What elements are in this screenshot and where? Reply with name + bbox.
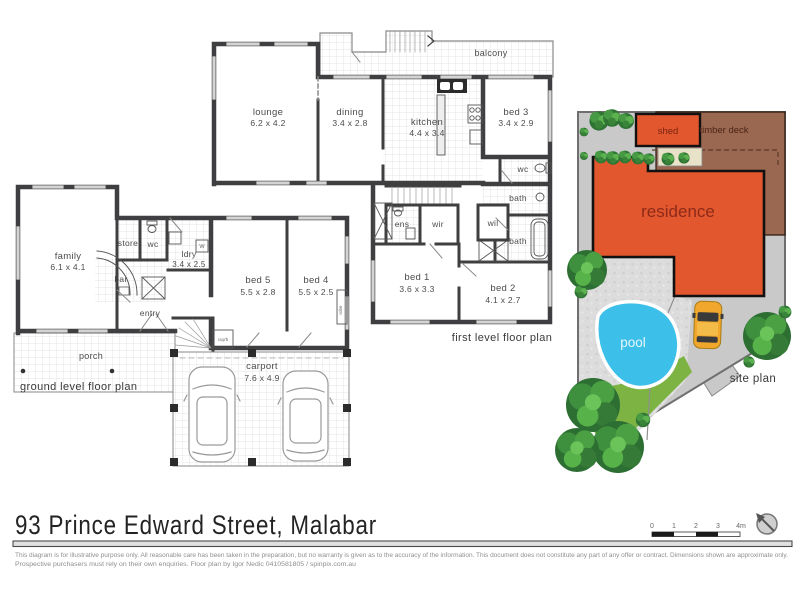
scale-tick-0: 0 <box>650 523 654 530</box>
bar-label: bar <box>114 274 127 284</box>
bed4-dims: 5.5 x 2.5 <box>298 287 333 297</box>
ens-label: ens <box>395 219 410 229</box>
carport-dims: 7.6 x 4.9 <box>244 373 279 383</box>
store-label: store <box>118 238 138 248</box>
scale-tick-1: 1 <box>672 523 676 530</box>
bed3-dims: 3.4 x 2.9 <box>498 118 533 128</box>
pool-label: pool <box>620 335 646 350</box>
family-label: family <box>55 251 82 262</box>
scale-tick-2: 2 <box>694 523 698 530</box>
cupb-label: cup'b <box>218 337 229 342</box>
compass-icon <box>756 513 777 534</box>
entry-label: entry <box>140 308 161 318</box>
bath-upper-label: bath <box>509 193 527 203</box>
car-outline-2 <box>278 371 333 461</box>
wir-label: wir <box>431 219 444 229</box>
disclaimer-line1: This diagram is for illustrative purpose… <box>15 552 788 559</box>
shed-label: shed <box>658 126 679 137</box>
family-dims: 6.1 x 4.1 <box>50 262 85 272</box>
balcony-label: balcony <box>474 48 507 58</box>
robe-label: robe <box>338 305 343 315</box>
ldry-label: ldry <box>182 249 197 259</box>
timber-deck-label: timber deck <box>699 125 748 136</box>
scale-tick-4: 4m <box>736 523 746 530</box>
lounge-dims: 6.2 x 4.2 <box>250 118 285 128</box>
ground-stairs <box>175 319 211 348</box>
bed5-dims: 5.5 x 2.8 <box>240 287 275 297</box>
bed4-label: bed 4 <box>303 275 328 286</box>
balcony-floor <box>320 31 553 77</box>
page-title: 93 Prince Edward Street, Malabar <box>15 510 377 540</box>
bed3-label: bed 3 <box>503 107 528 118</box>
bed5-label: bed 5 <box>245 275 270 286</box>
first-plan-label: first level floor plan <box>452 332 553 344</box>
ground-level-plan: family 6.1 x 4.1 store wc ldry 3.4 x 2.5… <box>14 187 351 466</box>
washer-label: W <box>199 244 205 250</box>
divider-bar <box>13 541 792 547</box>
scale-tick-3: 3 <box>716 523 720 530</box>
first-level-plan: balcony lounge 6.2 x 4.2 dining 3.4 x 2.… <box>214 31 553 344</box>
car-outline-1 <box>184 367 240 462</box>
site-plan: shed timber deck residence pool site pla… <box>555 109 791 473</box>
bed1-label: bed 1 <box>404 272 429 283</box>
wc-first-label: wc <box>517 164 529 174</box>
porch-post <box>21 369 26 374</box>
ground-plan-label: ground level floor plan <box>20 381 137 393</box>
kitchen-dims: 4.4 x 3.4 <box>409 128 444 138</box>
wc-ground-label: wc <box>147 239 159 249</box>
ldry-dims: 3.4 x 2.5 <box>172 260 206 269</box>
site-plan-label: site plan <box>730 373 776 385</box>
bed2-dims: 4.1 x 2.7 <box>485 295 520 305</box>
bed2-label: bed 2 <box>490 283 515 294</box>
floorplan-canvas: shed timber deck residence pool site pla… <box>0 0 800 600</box>
wil-label: wil <box>487 218 499 228</box>
dining-label: dining <box>336 107 363 118</box>
footer: 93 Prince Edward Street, Malabar This di… <box>13 510 792 568</box>
disclaimer-line2: Prospective purchasers must rely on thei… <box>15 561 356 568</box>
porch-label: porch <box>79 351 103 361</box>
carport-label: carport <box>246 361 278 372</box>
lounge-label: lounge <box>253 107 283 118</box>
car <box>691 301 724 349</box>
first-stairs <box>392 187 452 203</box>
scale-bar: 0 1 2 3 4m <box>650 523 746 537</box>
porch-post <box>110 369 115 374</box>
residence-label: residence <box>641 202 715 221</box>
bed1-dims: 3.6 x 3.3 <box>399 284 434 294</box>
kitchen-label: kitchen <box>411 117 443 128</box>
dining-dims: 3.4 x 2.8 <box>332 118 367 128</box>
floorplan-page: { "page": { "title": "93 Prince Edward S… <box>0 0 800 600</box>
bath-lower-label: bath <box>509 236 527 246</box>
